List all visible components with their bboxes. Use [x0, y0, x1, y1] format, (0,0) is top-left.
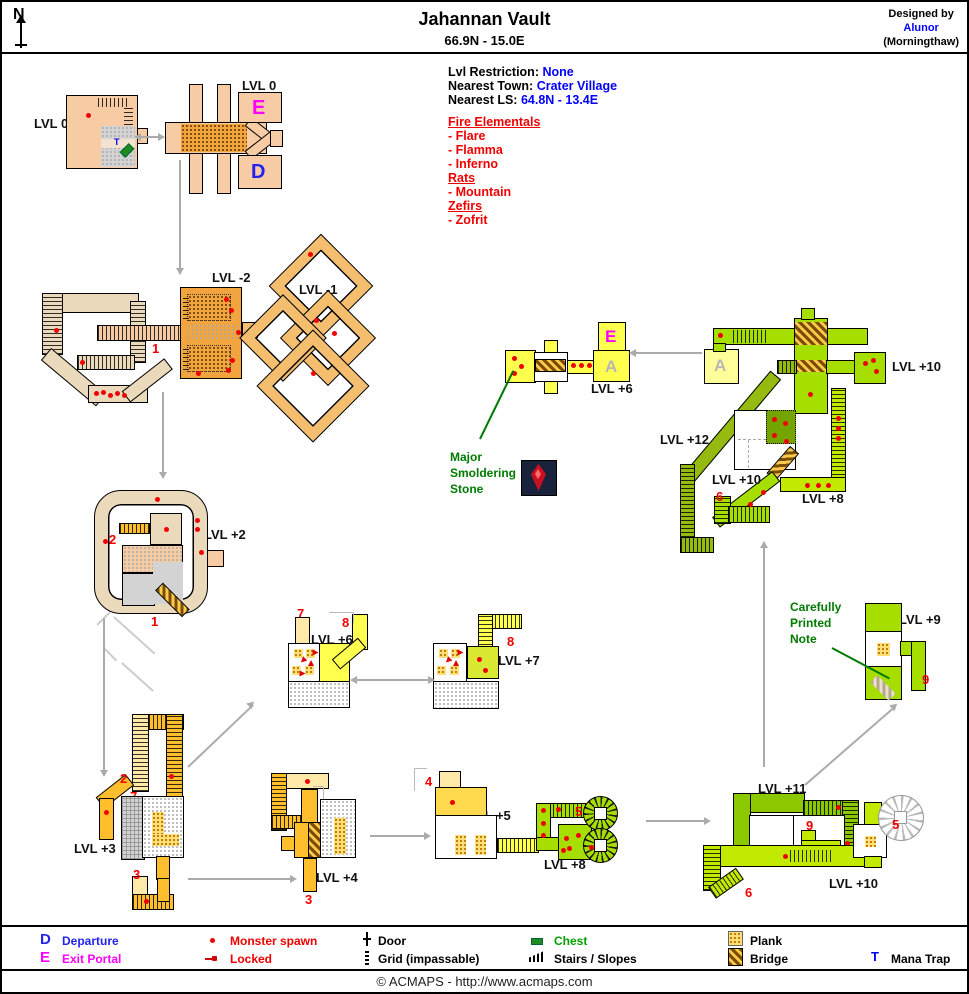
departure-room	[238, 155, 282, 189]
acmaps-dungeon-map: N Jahannan Vault 66.9N - 15.0E Designed …	[0, 0, 969, 994]
link-number: 1	[152, 342, 159, 355]
plank	[877, 643, 890, 656]
monster-spawn	[761, 490, 766, 495]
corridor	[217, 152, 231, 194]
monster-item: - Zofrit	[448, 213, 488, 227]
arrow-head-icon	[246, 699, 257, 710]
monster-spawn	[103, 539, 108, 544]
monster-spawn	[863, 361, 868, 366]
main-hall	[165, 122, 267, 154]
jump-arrow-icon	[300, 671, 309, 677]
monster-spawn	[512, 356, 517, 361]
room	[865, 603, 902, 633]
map-label: LVL +3	[74, 841, 116, 856]
room	[294, 822, 309, 858]
monster-spawn	[576, 833, 581, 838]
stairs-corridor	[132, 894, 174, 910]
impassable-area	[153, 562, 183, 604]
monster-spawn	[224, 297, 229, 302]
legend-spawn-icon	[210, 938, 215, 943]
arrow	[634, 352, 702, 354]
corridor	[536, 803, 586, 818]
loop-corridor	[95, 491, 207, 613]
link-number: 4	[425, 775, 432, 788]
spiral-stairs	[583, 796, 618, 831]
legend-chest-icon	[531, 938, 543, 945]
map-lvl0-entry: LVL 0 T	[2, 2, 967, 992]
corridor	[132, 714, 184, 730]
bridge	[795, 322, 827, 345]
stairs-corridor	[708, 868, 744, 899]
designer-name: Alunor	[883, 21, 959, 35]
monster-spawn	[94, 391, 99, 396]
corridor	[189, 152, 203, 194]
legend-plank-icon	[728, 931, 743, 946]
town-label: Nearest Town:	[448, 79, 533, 93]
legend-departure-symbol: D	[40, 932, 51, 947]
room	[433, 643, 467, 685]
arrow	[356, 679, 428, 681]
header: N Jahannan Vault 66.9N - 15.0E Designed …	[2, 2, 967, 992]
stone-note: Major Smoldering Stone	[450, 449, 530, 497]
monster-spawn	[195, 518, 200, 523]
room	[854, 352, 886, 384]
link-number: 1	[151, 615, 158, 628]
corridor	[352, 614, 368, 650]
arrow-head-icon	[428, 676, 435, 684]
monster-spawn	[718, 333, 723, 338]
stairs-corridor	[166, 714, 183, 798]
room	[288, 643, 320, 683]
legend-exit-label: Exit Portal	[62, 952, 121, 966]
arrow	[763, 547, 765, 767]
plank	[451, 649, 460, 658]
room	[142, 796, 184, 858]
ls-value: 64.8N - 13.4E	[521, 93, 598, 107]
footer-divider	[2, 969, 967, 971]
link-number: 8	[507, 635, 514, 648]
arrow-head-icon	[889, 701, 900, 712]
corridor	[703, 845, 867, 867]
corridor	[217, 84, 231, 128]
link-number: 8	[342, 616, 349, 629]
corridor	[189, 84, 203, 128]
ls-line: Nearest LS: 64.8N - 13.4E	[448, 93, 598, 107]
room	[793, 815, 845, 853]
map-lvl-plus4: LVL +4 4 3	[2, 2, 967, 992]
stairs-corridor	[497, 838, 539, 853]
map-lvl0-hub: LVL 0 E D	[2, 2, 967, 992]
corridor	[478, 614, 493, 650]
designer-block: Designed by Alunor (Morningthaw)	[883, 7, 959, 49]
stairs-corridor	[714, 496, 731, 524]
legend-exit-symbol: E	[40, 950, 50, 965]
plank-floor	[181, 124, 247, 152]
arrow-head-icon	[158, 133, 165, 141]
stairs-corridor	[777, 360, 797, 374]
plank	[437, 666, 446, 675]
stairs-corridor	[680, 464, 695, 546]
room	[766, 410, 796, 444]
monster-spawn	[564, 836, 569, 841]
monster-spawn	[236, 330, 241, 335]
monster-spawn	[86, 113, 91, 118]
stairs-corridor	[119, 523, 150, 534]
monster-spawn	[567, 846, 572, 851]
corridor	[303, 858, 317, 892]
corridor	[703, 845, 721, 891]
monster-spawn	[571, 363, 576, 368]
monster-spawn	[772, 417, 777, 422]
portal-chevron	[245, 117, 277, 145]
link-room	[704, 349, 739, 384]
monster-item: - Inferno	[448, 157, 498, 171]
arrow	[103, 618, 105, 772]
plank	[294, 649, 303, 658]
corridor	[130, 301, 146, 363]
monster-spawn	[784, 439, 789, 444]
monster-item: - Flamma	[448, 143, 503, 157]
corridor	[900, 641, 926, 656]
monster-spawn	[196, 371, 201, 376]
corridor	[99, 798, 114, 840]
exit-stub	[137, 128, 148, 144]
room	[865, 666, 902, 700]
room	[505, 350, 536, 383]
link-number: 7	[297, 607, 304, 620]
room	[122, 545, 183, 573]
exit-stub	[270, 130, 283, 147]
arrow-head-icon	[350, 676, 357, 684]
arrow-head-icon	[629, 349, 636, 357]
legend-door-label: Door	[378, 934, 406, 948]
plank	[334, 818, 346, 854]
bridge	[155, 583, 190, 618]
arrow-head-icon	[424, 832, 431, 840]
gem-facet	[531, 464, 546, 491]
monster-spawn	[122, 393, 127, 398]
side-stub	[544, 381, 558, 394]
impassable-area	[122, 573, 155, 606]
plank	[475, 835, 486, 855]
link-number: 2	[109, 533, 116, 546]
arrow-head-icon	[134, 133, 141, 141]
monster-spawn	[311, 371, 316, 376]
map-label: LVL +6	[591, 381, 633, 396]
monster-spawn	[808, 392, 813, 397]
corridor	[567, 360, 595, 374]
designed-by-label: Designed by	[883, 7, 959, 21]
stairs-corridor	[271, 815, 305, 829]
link-number: 4	[302, 794, 309, 807]
sketch-line	[738, 439, 766, 440]
legend-stairs-icon	[529, 951, 544, 962]
corridor	[826, 360, 856, 374]
corridor	[242, 322, 258, 338]
room	[801, 840, 841, 853]
designer-world: (Morningthaw)	[883, 35, 959, 49]
map-lvl-plus2: LVL +2 2 1	[2, 2, 967, 992]
bridge	[766, 446, 799, 481]
monster-group-name: Rats	[448, 171, 475, 185]
monster-spawn	[871, 358, 876, 363]
room	[853, 824, 887, 858]
corridor	[156, 856, 170, 880]
hatch-band	[187, 324, 237, 341]
monster-spawn	[169, 774, 174, 779]
stairs-texture	[183, 346, 189, 370]
link-bracket	[313, 786, 324, 801]
monster-spawn	[519, 364, 524, 369]
spiral-stairs-center	[594, 839, 607, 852]
map-label: LVL +12	[660, 432, 709, 447]
monster-spawn	[842, 810, 847, 815]
monster-spawn	[305, 779, 310, 784]
mana-trap-marker: T	[114, 138, 120, 147]
spiral-stairs-ghost	[878, 795, 924, 841]
monster-spawn	[748, 502, 753, 507]
corridor	[132, 876, 148, 910]
stairs-corridor	[803, 800, 849, 817]
link-number: 9	[922, 673, 929, 686]
map-lvl-minus2: LVL -2 1	[2, 2, 967, 992]
room	[734, 410, 796, 470]
corridor	[536, 837, 564, 851]
map-label: LVL +11	[758, 781, 806, 796]
map-lvl-plus7: LVL +7 8	[2, 2, 967, 992]
monster-spawn	[108, 393, 113, 398]
monster-spawn	[314, 318, 319, 323]
map-lvl-plus10-bottom: LVL +10 6 5	[2, 2, 967, 992]
map-label: LVL -2	[212, 270, 251, 285]
monster-spawn	[195, 527, 200, 532]
legend-manatrap-symbol: T	[871, 950, 879, 963]
map-label: LVL +10	[829, 876, 878, 891]
legend-bridge-icon	[728, 948, 743, 966]
loop-corridor	[258, 331, 368, 441]
main-room	[180, 287, 242, 379]
legend-locked-icon	[212, 956, 217, 961]
monster-spawn	[54, 328, 59, 333]
room	[150, 513, 182, 545]
bridge	[870, 675, 895, 700]
sketch-line	[103, 647, 117, 661]
monster-spawn	[836, 436, 841, 441]
corridor	[41, 348, 106, 407]
jump-arrow-icon	[313, 650, 322, 656]
restriction-label: Lvl Restriction:	[448, 65, 539, 79]
map-lvl-plus3: LVL +3 2 7 3	[2, 2, 967, 992]
corridor	[157, 878, 170, 902]
plank	[306, 649, 315, 658]
link-bracket	[414, 768, 427, 791]
corridor	[122, 358, 173, 402]
link-bracket	[329, 612, 354, 623]
jump-arrow-icon	[442, 656, 453, 667]
main-hall	[794, 318, 828, 414]
monster-spawn	[477, 657, 482, 662]
map-label: LVL 0	[34, 116, 68, 131]
arrow	[646, 820, 704, 822]
room	[865, 631, 902, 668]
arrow-head-icon	[290, 875, 297, 883]
corridor	[733, 793, 751, 857]
spiral-stairs	[583, 828, 618, 863]
monster-spawn	[783, 854, 788, 859]
chest-icon	[120, 143, 135, 158]
jump-arrow-icon	[453, 657, 459, 666]
spiral-stairs-center	[894, 811, 907, 824]
map-lvl-plus8-low: LVL +8 5	[2, 2, 967, 992]
arrow-head-icon	[704, 817, 711, 825]
jump-arrow-icon	[458, 650, 467, 656]
copyright-line: © ACMAPS - http://www.acmaps.com	[2, 974, 967, 989]
loop-corridor	[281, 291, 374, 384]
map-upper-complex: A LVL +10 LVL +12 6 LVL	[2, 2, 967, 992]
spiral-stairs-center	[594, 807, 607, 820]
corridor	[864, 856, 882, 868]
sketch-line	[121, 662, 153, 691]
stairs-corridor	[680, 537, 714, 553]
map-lvl-plus11: LVL +11 9	[2, 2, 967, 992]
legend-door-icon	[366, 932, 368, 946]
arrow	[187, 704, 254, 768]
link-room	[593, 350, 630, 382]
monster-spawn	[836, 416, 841, 421]
corridor	[733, 793, 805, 813]
monster-spawn	[783, 421, 788, 426]
monster-spawn	[199, 550, 204, 555]
legend-divider	[2, 925, 967, 927]
corridor	[96, 774, 135, 808]
monster-spawn	[226, 368, 231, 373]
monster-spawn	[144, 899, 149, 904]
map-label: LVL +7	[498, 653, 540, 668]
map-lvl-plus5: LVL +5 4	[2, 2, 967, 992]
lvl12-diagonal	[683, 371, 781, 484]
monster-group-name: Fire Elementals	[448, 115, 540, 129]
room	[319, 643, 350, 682]
map-label: LVL +10	[892, 359, 941, 374]
stairs-corridor	[271, 773, 287, 831]
monster-spawn	[80, 360, 85, 365]
link-number: 6	[745, 886, 752, 899]
impassable-area	[121, 796, 145, 860]
exit-portal-marker: E	[605, 328, 616, 345]
stairs-corridor	[728, 506, 770, 523]
corridor	[780, 477, 846, 492]
plank	[152, 834, 179, 846]
footer: © ACMAPS - http://www.acmaps.com	[2, 2, 967, 992]
legend-plank-label: Plank	[750, 934, 782, 948]
link-number: 3	[133, 868, 140, 881]
corridor	[536, 803, 551, 851]
plank	[305, 666, 314, 675]
monster-spawn	[874, 369, 879, 374]
jump-arrow-icon	[308, 657, 314, 666]
monster-spawn	[587, 363, 592, 368]
sketch-line	[113, 616, 155, 654]
corridor	[713, 343, 726, 352]
restriction-line: Lvl Restriction: None	[448, 65, 574, 79]
room	[467, 646, 499, 679]
monster-spawn	[816, 483, 821, 488]
legend-manatrap-label: Mana Trap	[891, 952, 950, 966]
map-label: LVL +6	[311, 632, 353, 647]
corridor	[42, 293, 139, 313]
map-label: LVL 0	[242, 78, 276, 93]
loop-corridor	[241, 296, 326, 381]
monster-spawn	[589, 845, 594, 850]
map-label: LVL +8	[544, 857, 586, 872]
monster-group-name: Zefirs	[448, 199, 482, 213]
side-room	[207, 550, 224, 567]
legend: D Departure E Exit Portal Monster spawn …	[2, 2, 967, 992]
legend-locked-icon	[205, 958, 212, 960]
legend-grid-label: Grid (impassable)	[378, 952, 479, 966]
stairs-texture	[98, 98, 130, 107]
monster-spawn	[101, 390, 106, 395]
loop-corridor	[270, 235, 372, 337]
monster-spawn	[836, 805, 841, 810]
connection-arrows	[2, 2, 967, 992]
room	[320, 799, 356, 858]
gem-highlight	[535, 469, 541, 479]
monster-spawn	[845, 841, 850, 846]
corridor	[911, 641, 926, 691]
link-number: 5	[892, 818, 899, 831]
plank	[152, 812, 164, 846]
corridor	[42, 293, 63, 355]
link-number: 6	[716, 490, 723, 503]
map-lvl-minus1: LVL -1	[2, 2, 967, 992]
stairs-corridor	[478, 614, 522, 629]
impassable-area	[101, 126, 135, 167]
plank-room	[187, 294, 231, 321]
ls-label: Nearest LS:	[448, 93, 517, 107]
map-lvl-plus9: LVL +9 9	[2, 2, 967, 992]
monster-spawn	[836, 426, 841, 431]
compass-arrow-shaft	[20, 22, 22, 48]
room	[435, 787, 487, 817]
arrow	[179, 160, 181, 270]
map-label: LVL +4	[316, 870, 358, 885]
restriction-value: None	[542, 65, 573, 79]
plank	[455, 835, 466, 855]
corridor	[439, 771, 461, 791]
corridor	[842, 800, 859, 852]
link-number: 3	[305, 893, 312, 906]
map-lvl-plus6-exit: LVL +6 E A	[2, 2, 967, 992]
monster-spawn	[826, 483, 831, 488]
map-label: LVL -1	[299, 282, 338, 297]
map-label: LVL +2	[204, 527, 246, 542]
stairs-corridor	[132, 714, 149, 792]
monster-spawn	[541, 808, 546, 813]
plank	[865, 836, 876, 847]
side-stub	[544, 340, 558, 353]
stairs-corridor	[97, 325, 182, 341]
monster-spawn	[579, 363, 584, 368]
monster-spawn	[229, 308, 234, 313]
compass-arrow-fletch	[15, 44, 27, 46]
room	[534, 352, 568, 382]
link-marker: A	[605, 358, 617, 375]
portal-chevron	[245, 131, 277, 159]
plank	[439, 649, 448, 658]
compass-n-label: N	[13, 6, 25, 24]
bridge	[535, 359, 566, 372]
